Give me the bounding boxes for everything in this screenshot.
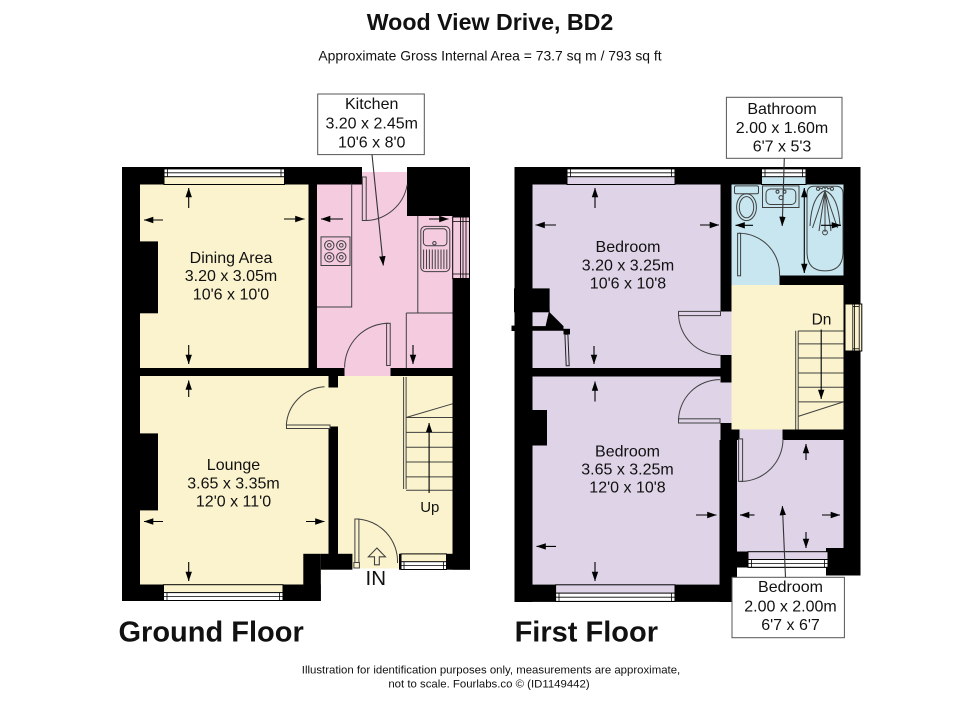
- svg-text:Lounge: Lounge: [207, 457, 260, 474]
- svg-text:12'0 x 11'0: 12'0 x 11'0: [196, 494, 271, 511]
- svg-text:10'6 x 10'8: 10'6 x 10'8: [590, 276, 666, 293]
- svg-text:Bathroom: Bathroom: [747, 101, 816, 118]
- svg-text:Ground Floor: Ground Floor: [119, 617, 304, 649]
- svg-text:3.20 x 2.45m: 3.20 x 2.45m: [325, 116, 418, 133]
- svg-text:First Floor: First Floor: [515, 617, 658, 649]
- svg-text:3.65 x 3.25m: 3.65 x 3.25m: [581, 461, 674, 478]
- svg-text:2.00 x 2.00m: 2.00 x 2.00m: [744, 599, 837, 616]
- svg-text:Approximate Gross Internal Are: Approximate Gross Internal Area = 73.7 s…: [318, 48, 661, 64]
- svg-text:Up: Up: [420, 499, 439, 516]
- svg-text:3.20 x 3.25m: 3.20 x 3.25m: [582, 257, 675, 274]
- svg-text:6'7 x 6'7: 6'7 x 6'7: [761, 617, 820, 634]
- svg-text:Dining Area: Dining Area: [190, 250, 273, 267]
- svg-text:2.00 x 1.60m: 2.00 x 1.60m: [736, 120, 829, 137]
- svg-text:Bedroom: Bedroom: [596, 239, 661, 256]
- svg-text:IN: IN: [366, 567, 387, 590]
- svg-text:3.20 x 3.05m: 3.20 x 3.05m: [185, 268, 278, 285]
- svg-text:6'7 x 5'3: 6'7 x 5'3: [753, 139, 812, 156]
- svg-text:12'0 x 10'8: 12'0 x 10'8: [589, 479, 665, 496]
- svg-text:Kitchen: Kitchen: [345, 96, 398, 113]
- svg-text:not to scale. Fourlabs.co © (I: not to scale. Fourlabs.co © (ID1149442): [388, 679, 590, 691]
- svg-text:10'6 x 8'0: 10'6 x 8'0: [338, 134, 406, 151]
- svg-text:Bedroom: Bedroom: [758, 579, 823, 596]
- svg-text:Illustration for identificatio: Illustration for identification purposes…: [302, 665, 680, 677]
- svg-text:3.65 x 3.35m: 3.65 x 3.35m: [187, 475, 280, 492]
- svg-text:Bedroom: Bedroom: [595, 443, 660, 460]
- svg-text:Wood View Drive, BD2: Wood View Drive, BD2: [367, 9, 614, 35]
- svg-text:10'6 x 10'0: 10'6 x 10'0: [193, 286, 269, 303]
- svg-text:Dn: Dn: [812, 312, 832, 329]
